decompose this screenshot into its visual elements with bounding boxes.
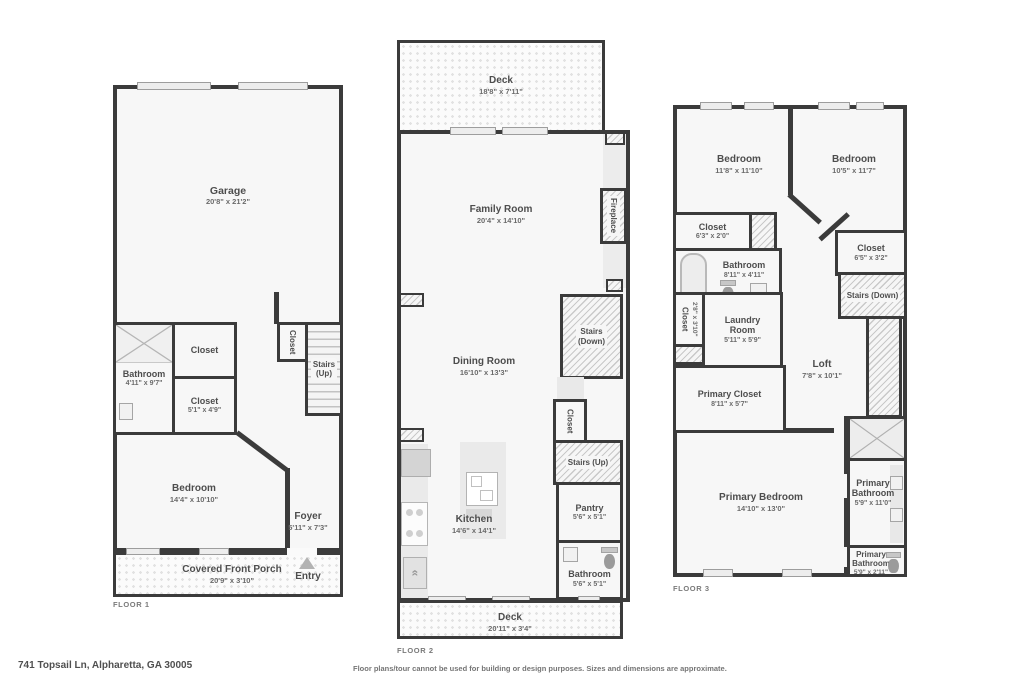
room-closet-f2: Closet: [553, 399, 587, 443]
room-pantry: Pantry 5'6" x 5'1": [556, 482, 623, 543]
room-bathroom-f1: Bathroom 4'11" x 9'7": [113, 322, 175, 435]
room-name: Garage: [210, 185, 246, 197]
room-kitchen: Kitchen 14'6" x 14'1": [414, 512, 534, 538]
room-name: Primary Bedroom: [719, 492, 803, 504]
room-dims: 14'4" x 10'10": [170, 496, 218, 505]
room-dims: 8'11" x 5'7": [698, 401, 762, 409]
toilet-icon: [886, 552, 901, 573]
room-primary-bedroom: Primary Bedroom 14'10" x 13'0": [691, 488, 831, 518]
room-stairs-up-f2: Stairs (Up): [553, 440, 623, 485]
room-label: Deck 20'11" x 3'4": [400, 609, 620, 637]
room-name: Covered Front Porch: [182, 564, 281, 576]
sliding-door: [502, 127, 548, 135]
room-name: Stairs: [313, 360, 335, 369]
room-name: Closet: [696, 222, 729, 232]
room-name: Closet: [565, 409, 574, 433]
room-label: Bathroom 8'11" x 4'11": [710, 259, 778, 281]
room-name: Bedroom: [172, 483, 216, 495]
room-name: Loft: [813, 359, 832, 371]
floor-2-label: FLOOR 2: [397, 646, 434, 655]
shower-icon: [847, 416, 907, 461]
structural-column: [399, 293, 424, 307]
door-opening: [287, 548, 317, 556]
structural-column: [606, 279, 623, 292]
room-bedroom-f3-left: Bedroom 11'8" x 11'10": [687, 150, 791, 180]
room-name: Dining Room: [453, 356, 515, 368]
room-stairs-down-f2: Stairs (Down): [560, 294, 623, 379]
room-dims: 7'8" x 10'1": [802, 372, 842, 381]
fireplace: Fireplace: [600, 188, 627, 244]
sink-icon: [119, 403, 133, 420]
structural-column: [605, 132, 625, 145]
structural-column: [399, 428, 424, 442]
stair-run: [866, 316, 902, 418]
room-label: Primary Bathroom 5'9" x 2'11": [851, 548, 891, 578]
room-stairs-down-f3: Stairs (Down): [838, 272, 907, 319]
room-dims: 6'3" x 2'0": [696, 233, 729, 241]
room-deck-top: Deck 18'8" x 7'11": [397, 40, 605, 133]
window: [700, 102, 732, 110]
room-dims: 10'5" x 11'7": [832, 167, 876, 176]
room-direction: (Up): [313, 369, 335, 378]
room-closet-f1-mid: Closet 5'1" x 4'9": [172, 376, 237, 435]
floor-1-label: FLOOR 1: [113, 600, 150, 609]
floorplan-canvas: Garage 20'8" x 21'2" Bathroom 4'11" x 9'…: [0, 0, 1024, 682]
room-name: Primary Closet: [698, 389, 762, 399]
room-name: Foyer: [294, 511, 321, 523]
room-name: Closet: [188, 396, 221, 406]
disclaimer-text: Floor plans/tour cannot be used for buil…: [353, 664, 727, 673]
window: [703, 569, 733, 577]
stove-icon: [466, 472, 498, 506]
sliding-door: [450, 127, 496, 135]
room-primary-bathroom-large: Primary Bathroom 5'9" x 11'0": [847, 458, 907, 548]
room-name: Bedroom: [832, 154, 876, 166]
room-bathroom-f2: Bathroom 5'6" x 5'1": [556, 540, 623, 600]
window: [126, 548, 160, 555]
room-dims: 6'5" x 3'2": [854, 255, 887, 263]
room-closet-f3-vert: Closet 2'8" x 3'10": [673, 292, 705, 347]
room-dims: 5'9" x 2'11": [854, 569, 888, 576]
room-dims: 5'6" x 5'1": [573, 514, 606, 522]
room-closet-f3-left: Closet 6'3" x 2'0": [673, 212, 752, 251]
room-dims: 5'11" x 5'9": [713, 337, 773, 345]
fridge-icon: [401, 449, 431, 477]
room-closet-f3-right: Closet 6'5" x 3'2": [835, 230, 907, 276]
room-name: Bathroom: [116, 369, 172, 379]
room-name: Stairs (Down): [847, 291, 899, 300]
window: [199, 548, 229, 555]
room-name: Deck: [498, 612, 522, 624]
dishwasher-icon: «: [403, 557, 427, 589]
room-dims: 8'11" x 4'11": [724, 272, 764, 280]
room-dims: 20'9" x 3'10": [210, 577, 254, 586]
room-dims: 5'9" x 11'0": [855, 500, 892, 508]
room-dims: 14'6" x 14'1": [452, 527, 496, 536]
shower-icon: [116, 325, 172, 363]
floor-3-label: FLOOR 3: [673, 584, 710, 593]
room-name: Bedroom: [717, 154, 761, 166]
wall-segment: [786, 428, 834, 433]
garage-door: [137, 82, 211, 90]
room-name: Closet: [288, 330, 297, 354]
room-laundry: Laundry Room 5'11" x 5'9": [702, 292, 783, 368]
room-deck-bottom: Deck 20'11" x 3'4": [397, 600, 623, 639]
room-dims: 20'8" x 21'2": [206, 198, 250, 207]
room-name: Stairs (Up): [568, 458, 608, 467]
room-dims: 5'11" x 7'3": [288, 524, 327, 533]
room-dims: 5'1" x 4'9": [188, 407, 221, 415]
sink-icon: [563, 547, 578, 562]
room-dims: 14'10" x 13'0": [737, 505, 785, 514]
room-name: Pantry: [573, 503, 606, 513]
room-name: Primary Bathroom: [851, 550, 891, 568]
room-name: Closet: [191, 345, 219, 355]
garage-door: [238, 82, 308, 90]
room-loft: Loft 7'8" x 10'1": [780, 356, 864, 384]
room-name: Bathroom: [723, 260, 766, 270]
room-dims: 5'6" x 5'1": [573, 581, 606, 589]
entry-label: Entry: [288, 571, 328, 583]
window: [818, 102, 850, 110]
room-stairs-up-f1: Stairs (Up): [305, 322, 343, 416]
room-name: Kitchen: [456, 514, 493, 526]
room-dims: 4'11" x 9'7": [116, 380, 172, 388]
room-closet-f1-stairs: Closet: [277, 322, 308, 362]
room-dims: 11'8" x 11'10": [715, 167, 762, 176]
room-name: Laundry Room: [713, 315, 773, 336]
window: [782, 569, 812, 577]
toilet-icon: [601, 547, 618, 569]
structural-column: [749, 212, 777, 251]
room-name: Closet: [854, 243, 887, 253]
room-direction: (Down): [578, 337, 605, 346]
room-dims: 18'8" x 7'11": [479, 88, 523, 97]
room-primary-bathroom-small: Primary Bathroom 5'9" x 2'11": [847, 545, 907, 577]
window: [744, 102, 774, 110]
room-dining-room: Dining Room 16'10" x 13'3": [424, 352, 544, 382]
property-address: 741 Topsail Ln, Alpharetta, GA 30005: [18, 660, 192, 671]
room-dims: 16'10" x 13'3": [460, 369, 508, 378]
window: [856, 102, 884, 110]
room-dims: 20'4" x 14'10": [477, 217, 525, 226]
room-dims: 20'11" x 3'4": [488, 625, 532, 634]
room-name: Entry: [295, 571, 321, 583]
room-label: Bathroom 4'11" x 9'7": [116, 369, 172, 388]
room-name: Bathroom: [568, 569, 611, 579]
wall-segment: [274, 292, 279, 324]
room-family-room: Family Room 20'4" x 14'10": [439, 200, 563, 230]
room-name: Closet: [680, 307, 689, 331]
room-label: Primary Bathroom 5'9" x 11'0": [852, 473, 894, 513]
room-label: Deck 18'8" x 7'11": [400, 71, 602, 101]
room-closet-f1-top: Closet: [172, 322, 237, 379]
room-name: Primary Bathroom: [852, 478, 895, 499]
room-name: Stairs: [578, 327, 605, 336]
room-primary-closet: Primary Closet 8'11" x 5'7": [673, 365, 786, 433]
entry-arrow-icon: [299, 557, 315, 569]
room-name: Family Room: [470, 204, 533, 216]
room-name: Deck: [489, 75, 513, 87]
room-bedroom-f3-right: Bedroom 10'5" x 11'7": [800, 150, 908, 180]
room-name: Fireplace: [609, 198, 618, 233]
room-dims: 2'8" x 3'10": [690, 302, 697, 337]
room-foyer: Foyer 5'11" x 7'3": [278, 509, 338, 535]
room-bedroom-f1: Bedroom 14'4" x 10'10": [134, 481, 254, 507]
room-garage: Garage 20'8" x 21'2": [158, 183, 298, 209]
room-label: Bathroom 5'6" x 5'1": [559, 567, 620, 591]
